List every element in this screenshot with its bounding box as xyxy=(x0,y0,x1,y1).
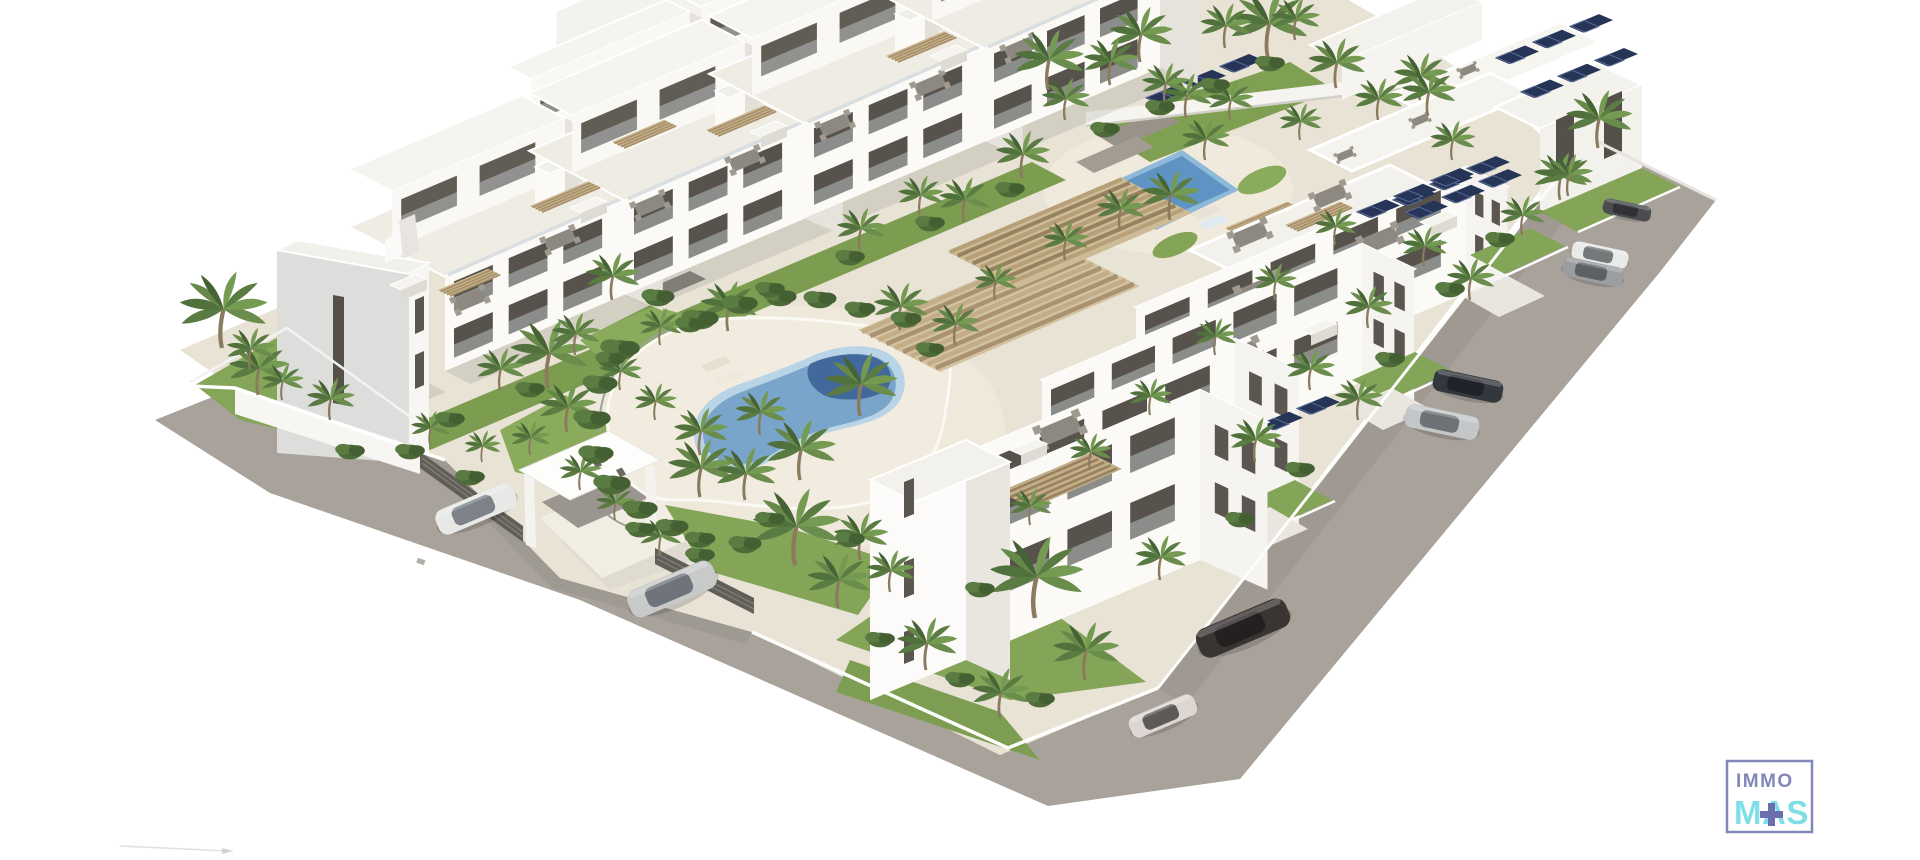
svg-text:IMMO: IMMO xyxy=(1736,771,1794,792)
